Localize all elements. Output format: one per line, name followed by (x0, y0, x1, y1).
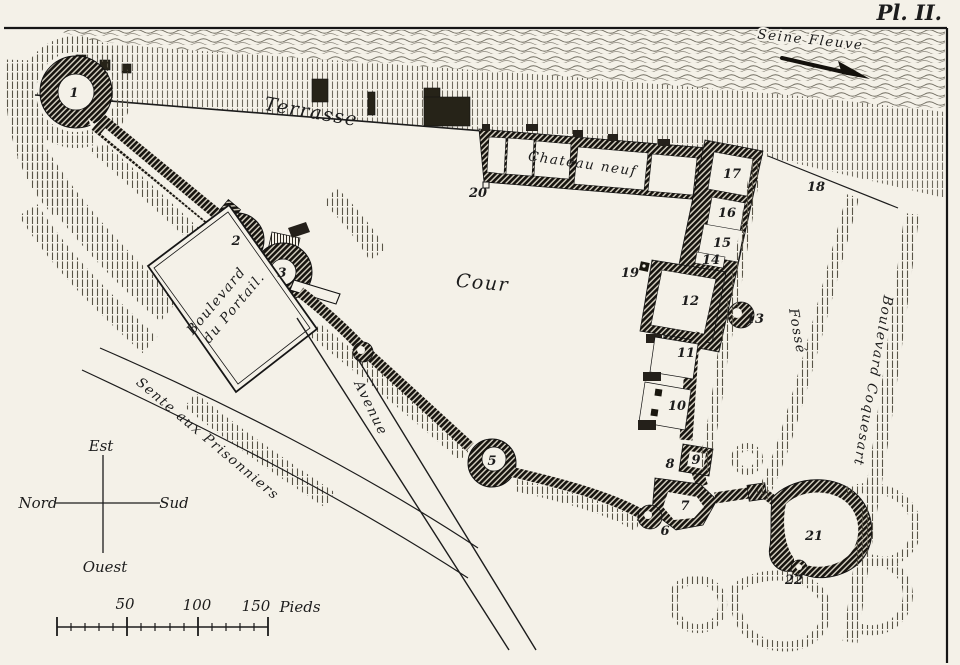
marker-18: 18 (807, 180, 825, 195)
marker-9: 9 (691, 453, 700, 468)
moat-label: Fossé (785, 306, 809, 355)
pillar-2 (650, 409, 658, 417)
marker-16: 16 (718, 206, 736, 221)
terrace-building-1 (312, 79, 328, 102)
scale-100-label: 100 (183, 596, 212, 614)
marker-15: 15 (713, 236, 731, 251)
scale-bar (57, 617, 268, 636)
marker-17: 17 (723, 167, 741, 182)
marker-22: 22 (784, 573, 803, 588)
marker-3: 3 (277, 266, 286, 281)
terrace-building-3 (424, 97, 470, 126)
marker-6: 6 (660, 524, 669, 539)
marker-11: 11 (677, 346, 695, 361)
tower-6 (638, 505, 662, 529)
compass-south-label: Sud (159, 494, 189, 512)
marker-14: 14 (702, 253, 720, 268)
scale-50-label: 50 (115, 595, 135, 613)
marker-21: 21 (804, 529, 823, 544)
marker-10: 10 (668, 399, 686, 414)
marker-13: 13 (746, 312, 764, 327)
marker-7: 7 (680, 499, 689, 514)
terrace-building-2 (368, 92, 375, 115)
scale-unit-label: Pieds (278, 598, 320, 616)
engraved-castle-plan: Pl. II. Seine Fleuve (0, 0, 960, 665)
prisoners-path-label-text: Sente aux Prisonniers (133, 374, 283, 503)
marker-5: 5 (487, 454, 496, 469)
gate-wall-piece (288, 222, 310, 238)
marker-19: 19 (621, 266, 639, 281)
scale-150-label: 150 (242, 597, 271, 615)
plate-label: Pl. II. (876, 0, 942, 25)
marker-20: 20 (468, 186, 487, 201)
compass-north-label: Nord (18, 494, 58, 512)
cour-label-text: Cour (455, 270, 510, 297)
plan-svg: Pl. II. Seine Fleuve (0, 0, 960, 665)
prisoners-path-label: Sente aux Prisonniers (133, 374, 283, 503)
compass-rose: Est Nord Sud Ouest (18, 437, 189, 576)
fosse-label-text: Fossé (785, 306, 809, 355)
pillar-1 (654, 389, 662, 397)
courtyard-label: Cour (455, 270, 510, 297)
marker-1: 1 (69, 86, 78, 101)
turret-4 (353, 342, 373, 362)
compass-west-label: Ouest (83, 558, 129, 576)
scale-bar-labels: 50 100 150 Pieds (115, 595, 320, 616)
marker-2: 2 (230, 234, 240, 249)
compass-east-label: Est (88, 437, 115, 455)
marker-8: 8 (665, 457, 674, 472)
well-19 (639, 261, 650, 272)
marker-12: 12 (681, 294, 699, 309)
